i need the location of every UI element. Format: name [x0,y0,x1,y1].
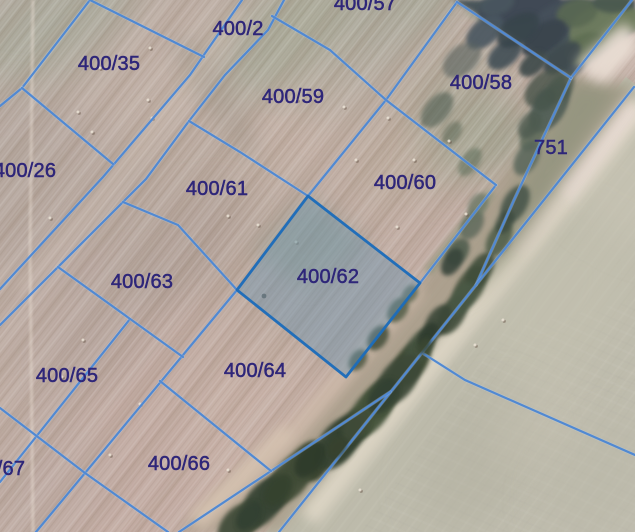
svg-text:400/35: 400/35 [78,53,140,75]
svg-text:400/26: 400/26 [0,160,56,182]
svg-text:751: 751 [534,137,568,159]
svg-text:400/63: 400/63 [111,271,173,293]
svg-text:400/59: 400/59 [262,86,324,108]
svg-text:400/57: 400/57 [334,0,396,15]
svg-text:400/65: 400/65 [36,365,98,387]
svg-text:400/62: 400/62 [297,266,359,288]
svg-text:400/66: 400/66 [148,453,210,475]
svg-text:400/64: 400/64 [224,360,286,382]
svg-text:400/67: 400/67 [0,458,25,480]
svg-text:400/58: 400/58 [450,72,512,94]
svg-text:400/2: 400/2 [212,18,263,40]
svg-text:400/60: 400/60 [374,172,436,194]
svg-text:400/61: 400/61 [186,178,248,200]
